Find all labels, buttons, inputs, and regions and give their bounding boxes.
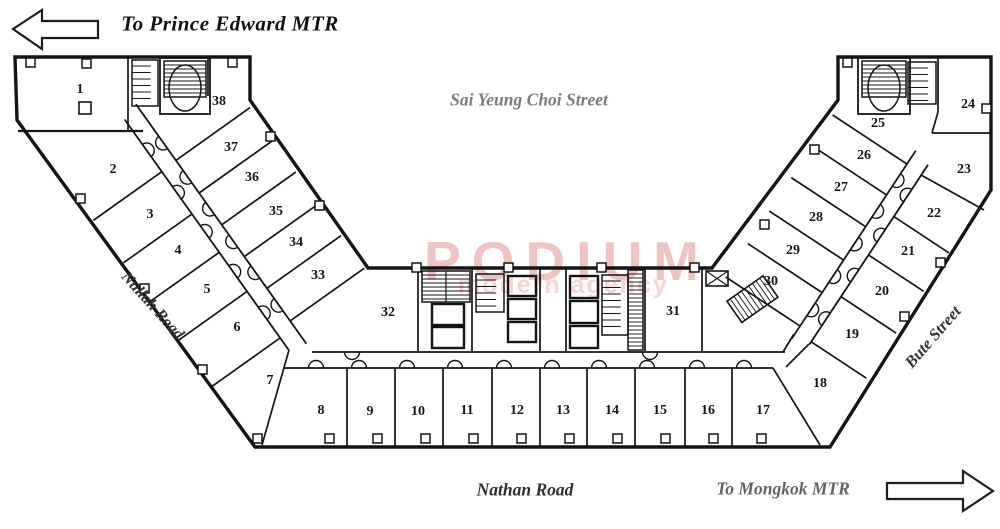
unit-label-7: 7 [267,373,274,389]
unit-label-20: 20 [875,284,889,300]
unit-label-14: 14 [605,403,619,419]
unit-label-2: 2 [110,162,117,178]
unit-label-8: 8 [318,403,325,419]
unit-label-28: 28 [809,210,823,226]
unit-label-15: 15 [653,403,667,419]
arrow-left-icon [10,7,102,55]
street-label-nathan-road: Nathan Road [477,480,574,501]
unit-label-27: 27 [834,180,848,196]
unit-label-10: 10 [411,404,425,420]
unit-label-21: 21 [901,244,915,260]
unit-label-33: 33 [311,268,325,284]
unit-label-9: 9 [367,404,374,420]
unit-label-3: 3 [147,207,154,223]
unit-label-22: 22 [927,206,941,222]
arrow-right-icon [884,468,996,516]
floorplan-drawing [0,0,1000,529]
unit-label-12: 12 [510,403,524,419]
unit-label-16: 16 [701,403,715,419]
unit-label-19: 19 [845,327,859,343]
unit-label-25: 25 [871,116,885,132]
unit-label-32: 32 [381,305,395,321]
unit-label-26: 26 [857,148,871,164]
unit-label-4: 4 [175,243,182,259]
unit-label-34: 34 [289,235,303,251]
unit-label-5: 5 [204,282,211,298]
unit-label-17: 17 [756,403,770,419]
unit-label-11: 11 [460,403,473,419]
unit-label-24: 24 [961,97,975,113]
unit-label-30: 30 [764,274,778,290]
street-label-sai-yeung-choi: Sai Yeung Choi Street [450,90,608,111]
unit-label-13: 13 [556,403,570,419]
unit-label-36: 36 [245,170,259,186]
unit-label-1: 1 [77,82,84,98]
unit-label-35: 35 [269,204,283,220]
direction-label-mongkok: To Mongkok MTR [716,479,850,500]
direction-label-prince-edward: To Prince Edward MTR [121,12,339,37]
unit-label-18: 18 [813,376,827,392]
unit-label-6: 6 [234,320,241,336]
unit-label-29: 29 [786,243,800,259]
unit-label-31: 31 [666,304,680,320]
unit-label-23: 23 [957,162,971,178]
unit-label-37: 37 [224,140,238,156]
unit-label-38: 38 [212,94,226,110]
floorplan-page: PODIUM modern agency To Prince Edward MT… [0,0,1000,529]
